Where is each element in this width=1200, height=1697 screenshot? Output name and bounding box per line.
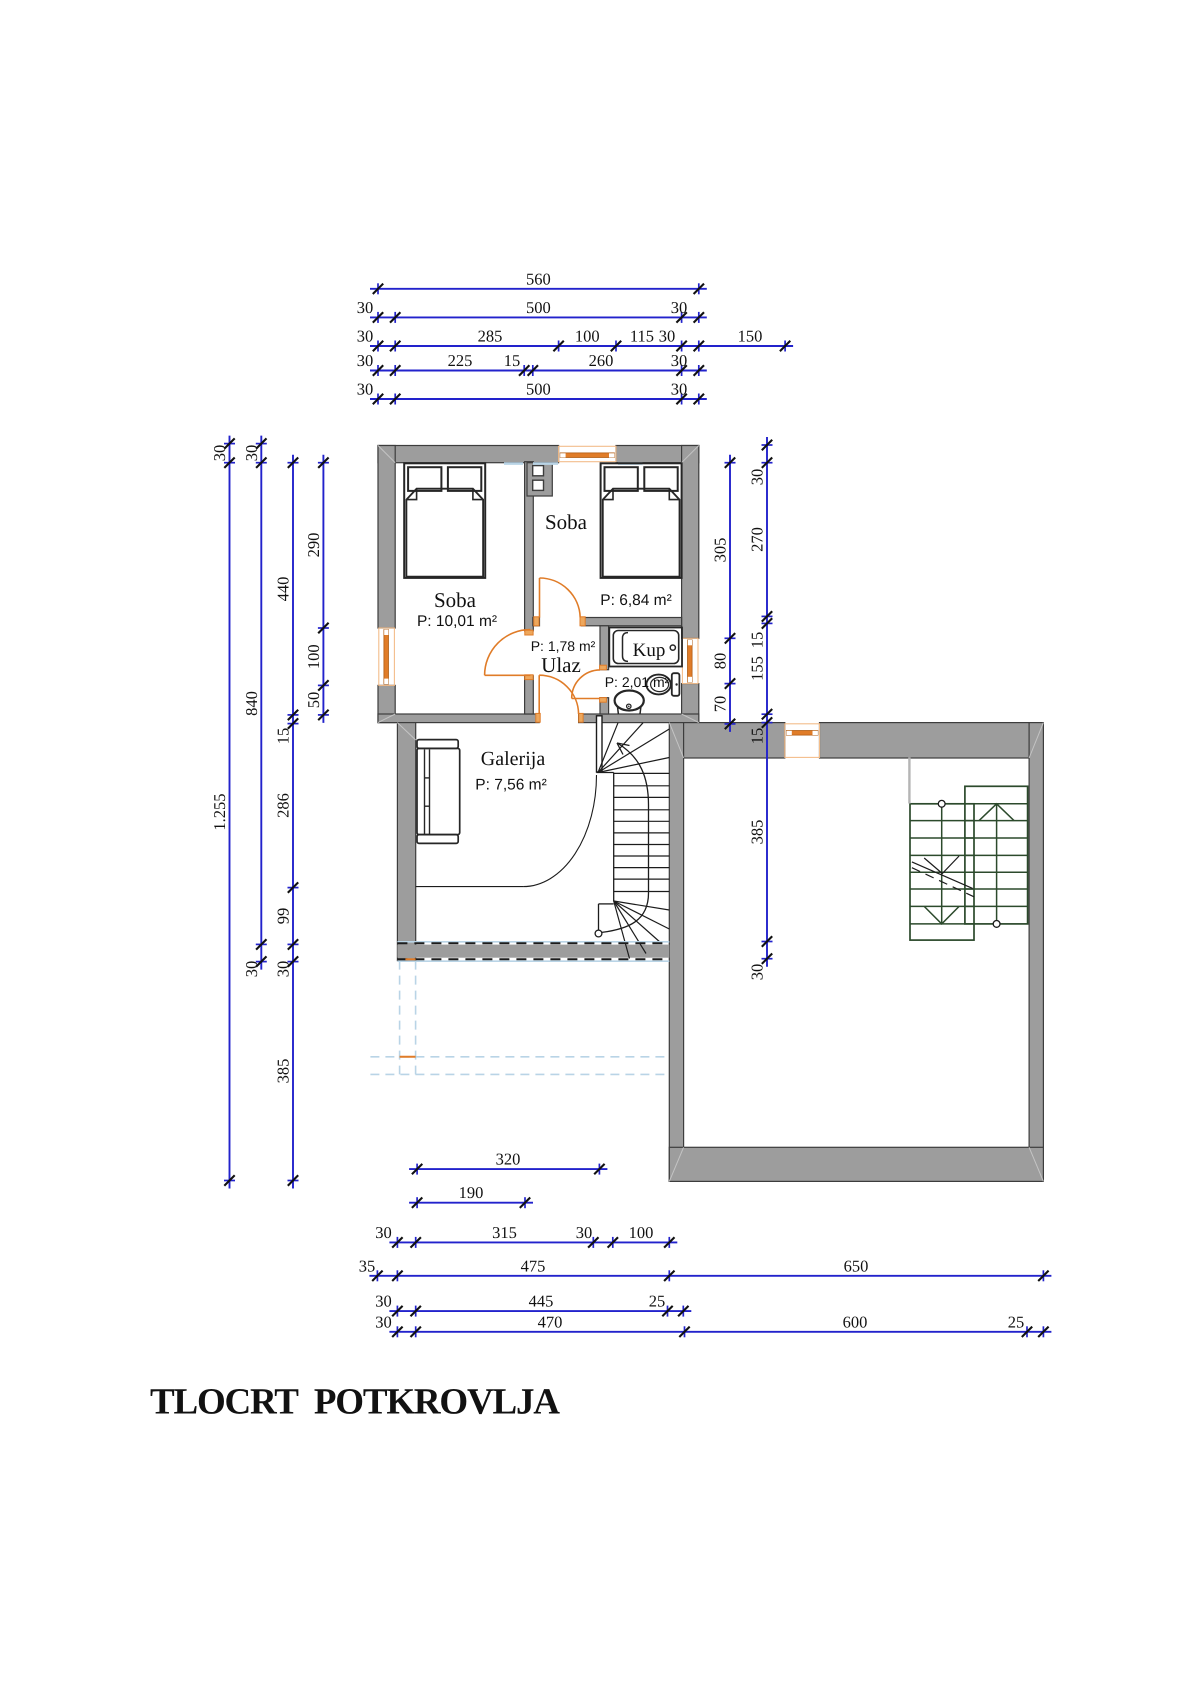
svg-text:30: 30 [671, 351, 688, 370]
svg-text:285: 285 [478, 327, 503, 346]
svg-text:100: 100 [304, 644, 323, 669]
svg-text:30: 30 [357, 298, 374, 317]
svg-text:30: 30 [274, 961, 293, 978]
svg-text:30: 30 [375, 1292, 392, 1311]
svg-text:25: 25 [1008, 1312, 1025, 1331]
svg-text:30: 30 [671, 298, 688, 317]
svg-text:Galerija: Galerija [481, 748, 546, 770]
svg-text:385: 385 [274, 1059, 293, 1084]
svg-text:840: 840 [242, 691, 261, 716]
svg-text:290: 290 [304, 533, 323, 558]
svg-text:115: 115 [630, 327, 654, 346]
svg-text:500: 500 [526, 298, 551, 317]
svg-text:30: 30 [357, 327, 374, 346]
svg-text:Soba: Soba [434, 588, 477, 612]
svg-text:500: 500 [526, 380, 551, 399]
svg-text:155: 155 [748, 656, 767, 681]
svg-text:260: 260 [589, 351, 614, 370]
svg-text:80: 80 [711, 653, 730, 670]
svg-text:445: 445 [529, 1292, 554, 1311]
svg-text:1.255: 1.255 [210, 793, 229, 830]
svg-text:30: 30 [748, 964, 767, 981]
svg-text:30: 30 [357, 380, 374, 399]
svg-text:560: 560 [526, 269, 551, 288]
svg-text:50: 50 [304, 692, 323, 709]
svg-text:30: 30 [357, 351, 374, 370]
svg-text:270: 270 [748, 527, 767, 552]
svg-text:TLOCRT POTKROVLJA: TLOCRT POTKROVLJA [150, 1382, 560, 1423]
svg-text:15: 15 [748, 728, 767, 745]
svg-text:286: 286 [274, 793, 293, 818]
svg-text:100: 100 [629, 1223, 654, 1242]
svg-text:P: 2,01 m²: P: 2,01 m² [605, 674, 670, 690]
svg-text:470: 470 [538, 1312, 563, 1331]
svg-text:Ulaz: Ulaz [541, 653, 581, 677]
svg-text:600: 600 [843, 1312, 868, 1331]
svg-text:30: 30 [659, 327, 676, 346]
svg-text:P: 7,56 m²: P: 7,56 m² [475, 777, 547, 794]
svg-text:150: 150 [738, 327, 763, 346]
svg-text:P: 1,78 m²: P: 1,78 m² [531, 638, 596, 654]
svg-text:315: 315 [492, 1223, 517, 1242]
svg-text:475: 475 [521, 1256, 546, 1275]
svg-text:P: 10,01 m²: P: 10,01 m² [417, 613, 497, 630]
svg-text:30: 30 [210, 445, 229, 462]
svg-text:650: 650 [844, 1256, 869, 1275]
svg-text:30: 30 [576, 1223, 593, 1242]
svg-text:25: 25 [649, 1292, 666, 1311]
svg-text:30: 30 [671, 380, 688, 399]
svg-text:30: 30 [242, 961, 261, 978]
svg-text:Soba: Soba [545, 510, 588, 534]
svg-text:440: 440 [274, 577, 293, 602]
svg-text:35: 35 [359, 1256, 376, 1275]
svg-text:15: 15 [748, 632, 767, 649]
svg-text:225: 225 [448, 351, 473, 370]
svg-text:30: 30 [375, 1312, 392, 1331]
svg-text:15: 15 [504, 351, 521, 370]
svg-text:15: 15 [274, 728, 293, 745]
svg-text:100: 100 [575, 327, 600, 346]
svg-text:P: 6,84 m²: P: 6,84 m² [600, 592, 672, 609]
svg-text:385: 385 [748, 820, 767, 845]
svg-text:305: 305 [711, 538, 730, 563]
svg-text:320: 320 [496, 1150, 521, 1169]
svg-text:70: 70 [711, 696, 730, 713]
svg-text:99: 99 [274, 908, 293, 925]
svg-text:30: 30 [242, 445, 261, 462]
svg-text:Kup: Kup [633, 640, 666, 661]
svg-text:30: 30 [375, 1223, 392, 1242]
svg-text:190: 190 [459, 1183, 484, 1202]
svg-text:30: 30 [748, 469, 767, 486]
